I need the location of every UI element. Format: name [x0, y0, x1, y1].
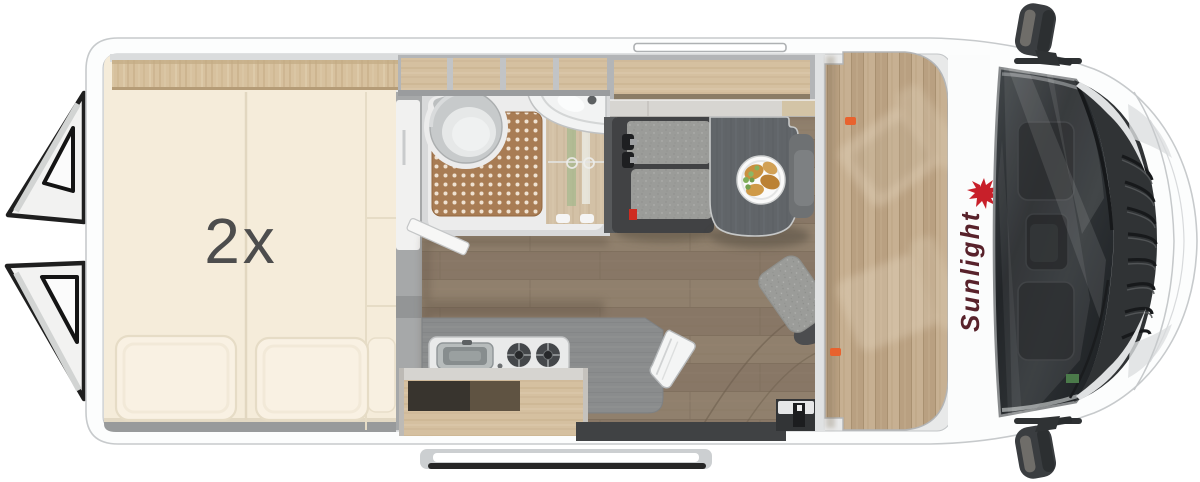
svg-text:2x: 2x	[204, 205, 278, 277]
svg-text:Sunlight: Sunlight	[955, 210, 985, 332]
